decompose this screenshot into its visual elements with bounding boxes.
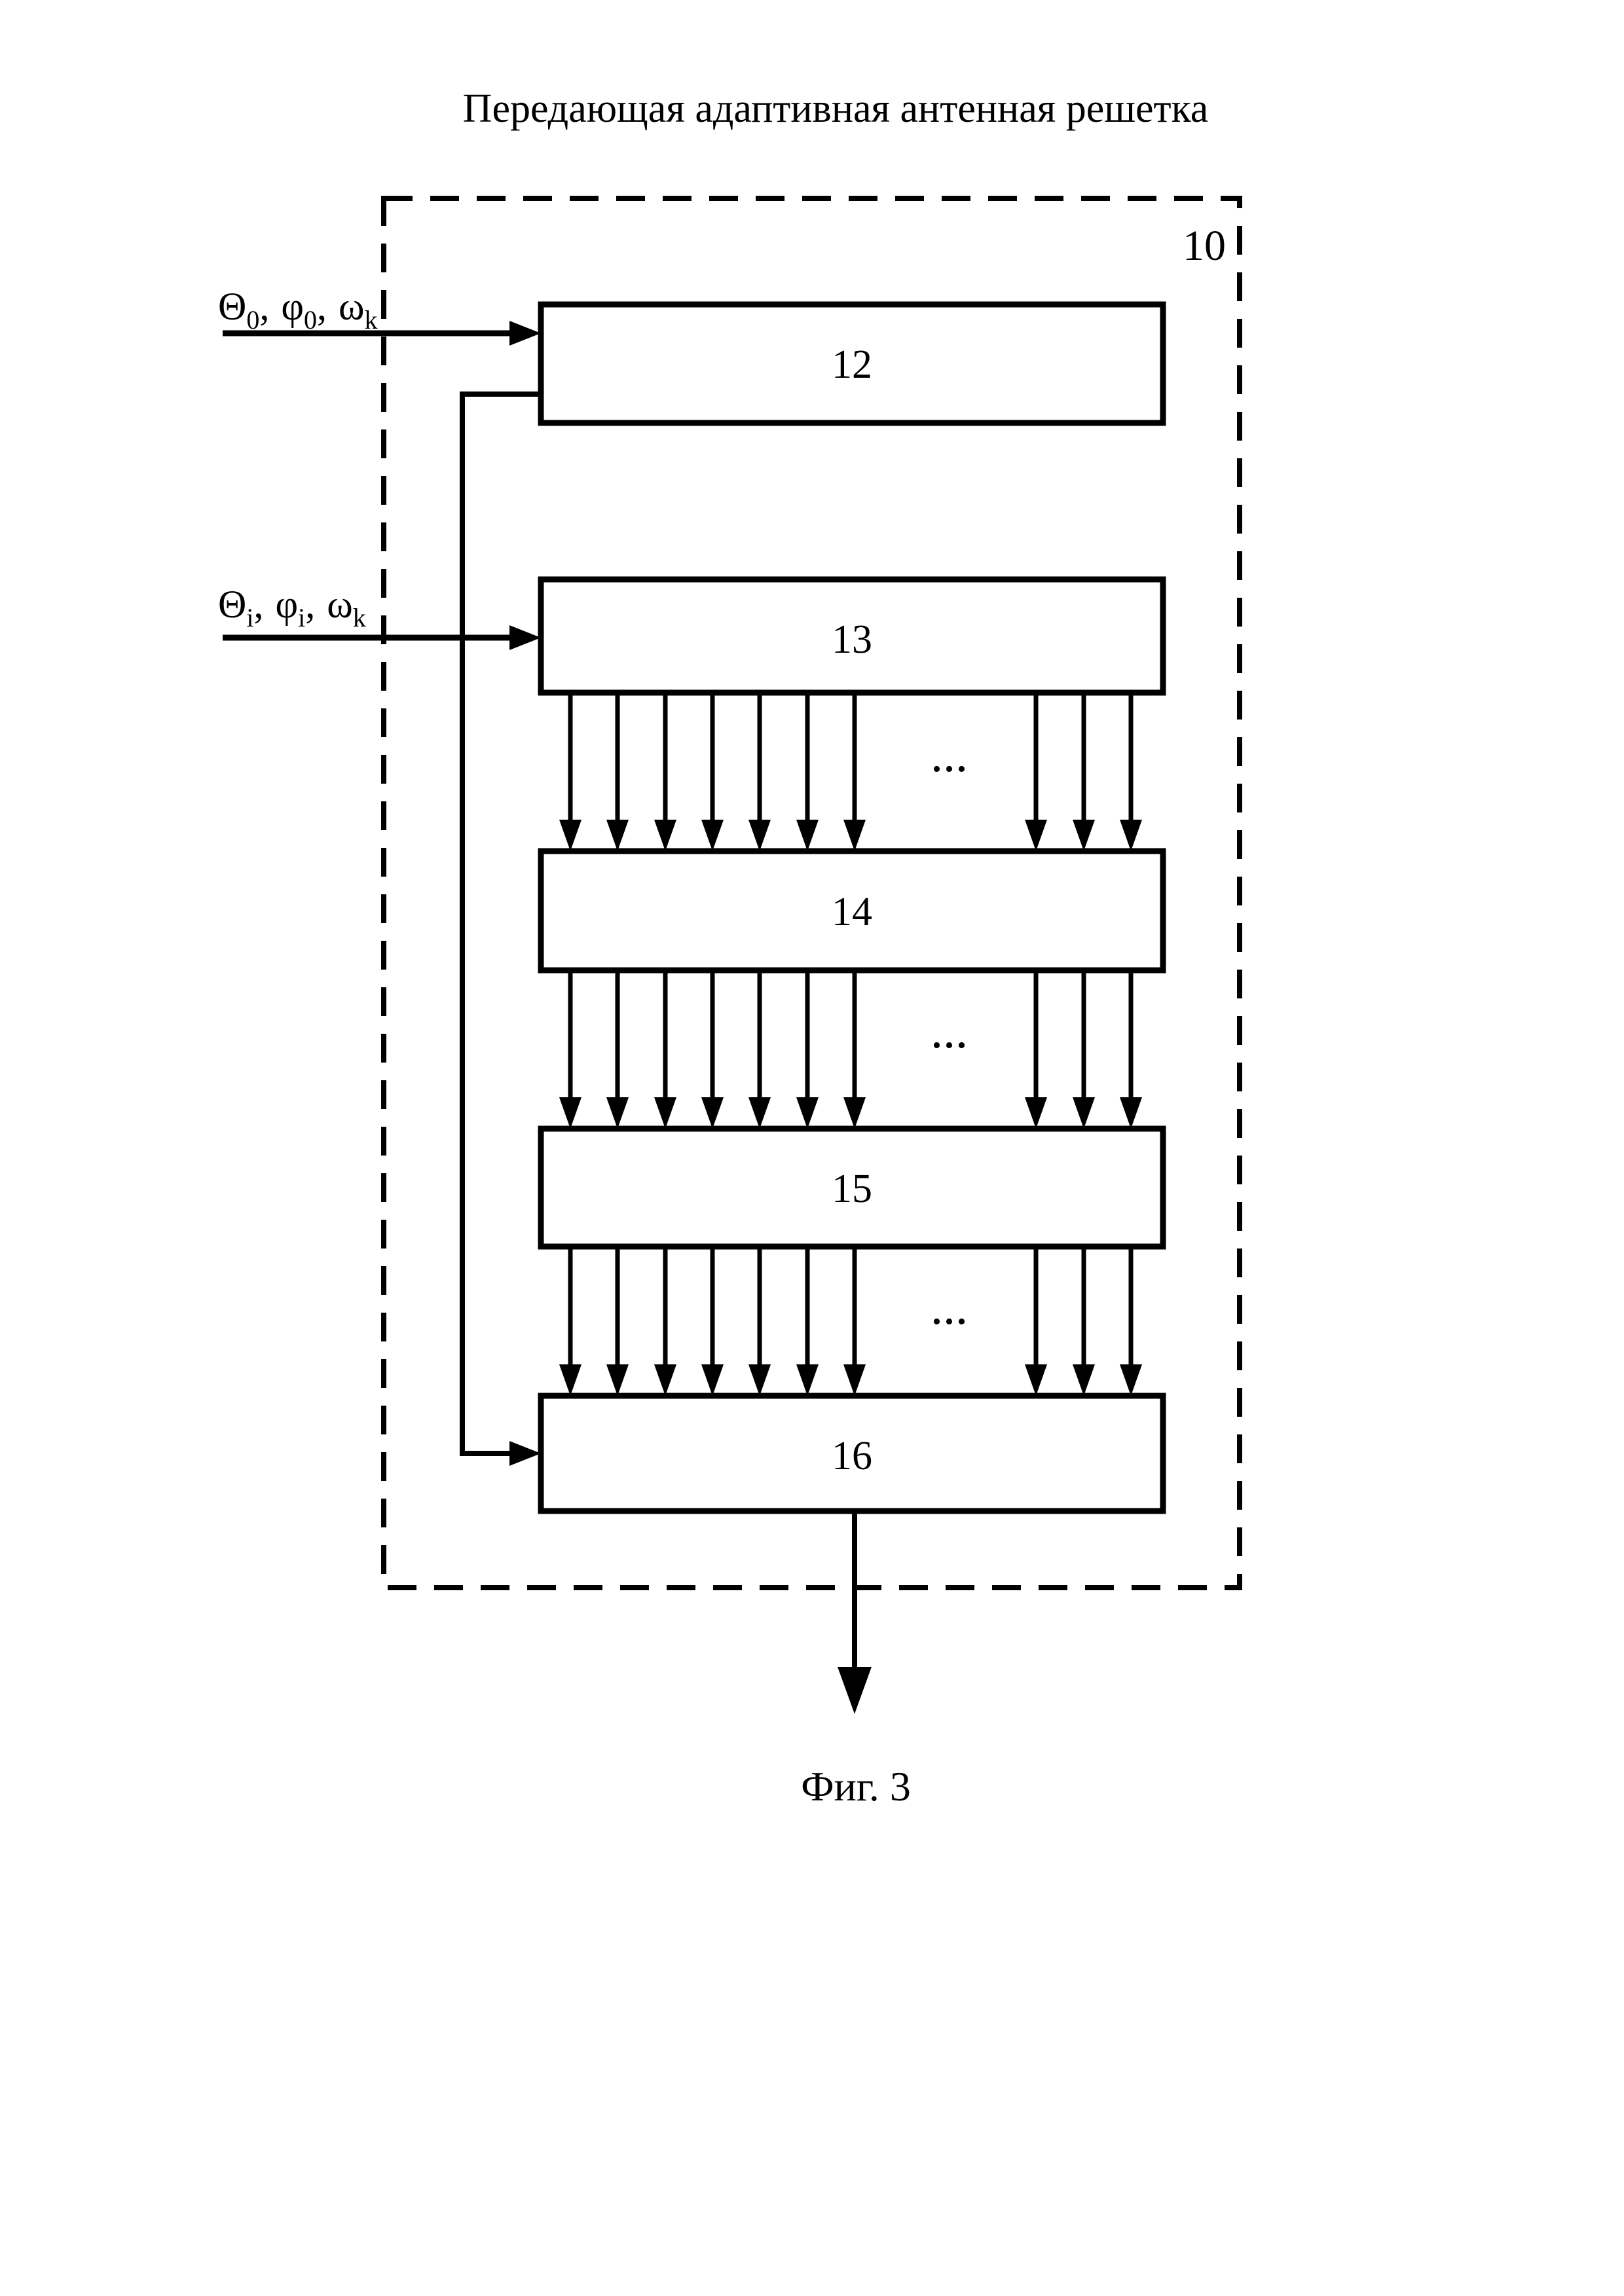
phi-subscript: 0 [304, 305, 317, 335]
ellipsis-15-16: ... [932, 1292, 970, 1332]
feedback-line [462, 394, 541, 1453]
theta-subscript: 0 [246, 305, 259, 335]
down-arrow-head-icon [748, 1364, 771, 1396]
down-arrow-head-icon [1120, 1097, 1142, 1129]
block-13-label: 13 [832, 617, 872, 662]
arrow-group-14-to-15 [559, 970, 1142, 1129]
down-arrow-head-icon [796, 820, 819, 851]
down-arrow-head-icon [701, 1364, 724, 1396]
down-arrow-head-icon [1025, 820, 1047, 851]
figure-3-diagram: Передающая адаптивная антенная решетка 1… [0, 0, 1624, 2296]
down-arrow-head-icon [748, 1097, 771, 1129]
arrow-group-13-to-14 [559, 693, 1142, 851]
down-arrow-head-icon [559, 1364, 581, 1396]
down-arrow-head-icon [654, 1364, 676, 1396]
down-arrow-head-icon [1073, 1364, 1095, 1396]
down-arrow-head-icon [559, 1097, 581, 1129]
down-arrow-head-icon [843, 820, 866, 851]
input-label-1: Θi,φi,ωk [218, 583, 366, 632]
down-arrow-head-icon [796, 1364, 819, 1396]
input-arrow-1-group: Θi,φi,ωk [218, 583, 541, 650]
omega-symbol: ω [339, 285, 365, 328]
block-12-label: 12 [832, 342, 872, 387]
down-arrow-head-icon [606, 1364, 629, 1396]
input-arrow-1-head-icon [509, 625, 541, 650]
down-arrow-head-icon [654, 1097, 676, 1129]
down-arrow-head-icon [748, 820, 771, 851]
theta-subscript: i [246, 603, 253, 632]
input-arrow-0-group: Θ0,φ0,ωk [218, 285, 541, 346]
outer-block-label: 10 [1183, 222, 1226, 270]
figure-caption: Фиг. 3 [801, 1763, 911, 1810]
block-15-label: 15 [832, 1167, 872, 1211]
feedback-arrow-head-icon [509, 1441, 541, 1466]
down-arrow-head-icon [559, 820, 581, 851]
down-arrow-head-icon [1025, 1097, 1047, 1129]
figure-title: Передающая адаптивная антенная решетка [463, 86, 1209, 131]
down-arrow-head-icon [701, 820, 724, 851]
down-arrow-head-icon [606, 820, 629, 851]
theta-symbol: Θ [218, 285, 246, 328]
output-arrow-group [838, 1511, 872, 1714]
feedback-line-12-to-16-group [462, 394, 541, 1466]
down-arrow-head-icon [1073, 820, 1095, 851]
block-14-label: 14 [832, 890, 872, 934]
phi-subscript: i [298, 603, 305, 632]
down-arrow-head-icon [701, 1097, 724, 1129]
comma: , [253, 583, 263, 626]
down-arrow-head-icon [796, 1097, 819, 1129]
phi-symbol: φ [275, 583, 298, 626]
down-arrow-head-icon [1120, 820, 1142, 851]
patent-figure-page: Передающая адаптивная антенная решетка 1… [0, 0, 1624, 2296]
output-arrow-head-icon [838, 1667, 872, 1714]
down-arrow-head-icon [606, 1097, 629, 1129]
down-arrow-head-icon [1073, 1097, 1095, 1129]
ellipsis-13-14: ... [932, 739, 970, 780]
down-arrow-head-icon [1120, 1364, 1142, 1396]
omega-subscript: k [364, 305, 377, 335]
omega-symbol: ω [327, 583, 353, 626]
comma: , [305, 583, 315, 626]
theta-symbol: Θ [218, 583, 246, 626]
ellipsis-14-15: ... [932, 1015, 970, 1056]
down-arrow-head-icon [654, 820, 676, 851]
phi-symbol: φ [281, 285, 304, 328]
comma: , [259, 285, 269, 328]
block-16-label: 16 [832, 1434, 872, 1478]
down-arrow-head-icon [843, 1364, 866, 1396]
comma: , [317, 285, 327, 328]
down-arrow-head-icon [843, 1097, 866, 1129]
arrow-group-15-to-16 [559, 1247, 1142, 1396]
input-label-0: Θ0,φ0,ωk [218, 285, 377, 335]
down-arrow-head-icon [1025, 1364, 1047, 1396]
omega-subscript: k [353, 603, 366, 632]
input-arrow-0-head-icon [509, 321, 541, 346]
